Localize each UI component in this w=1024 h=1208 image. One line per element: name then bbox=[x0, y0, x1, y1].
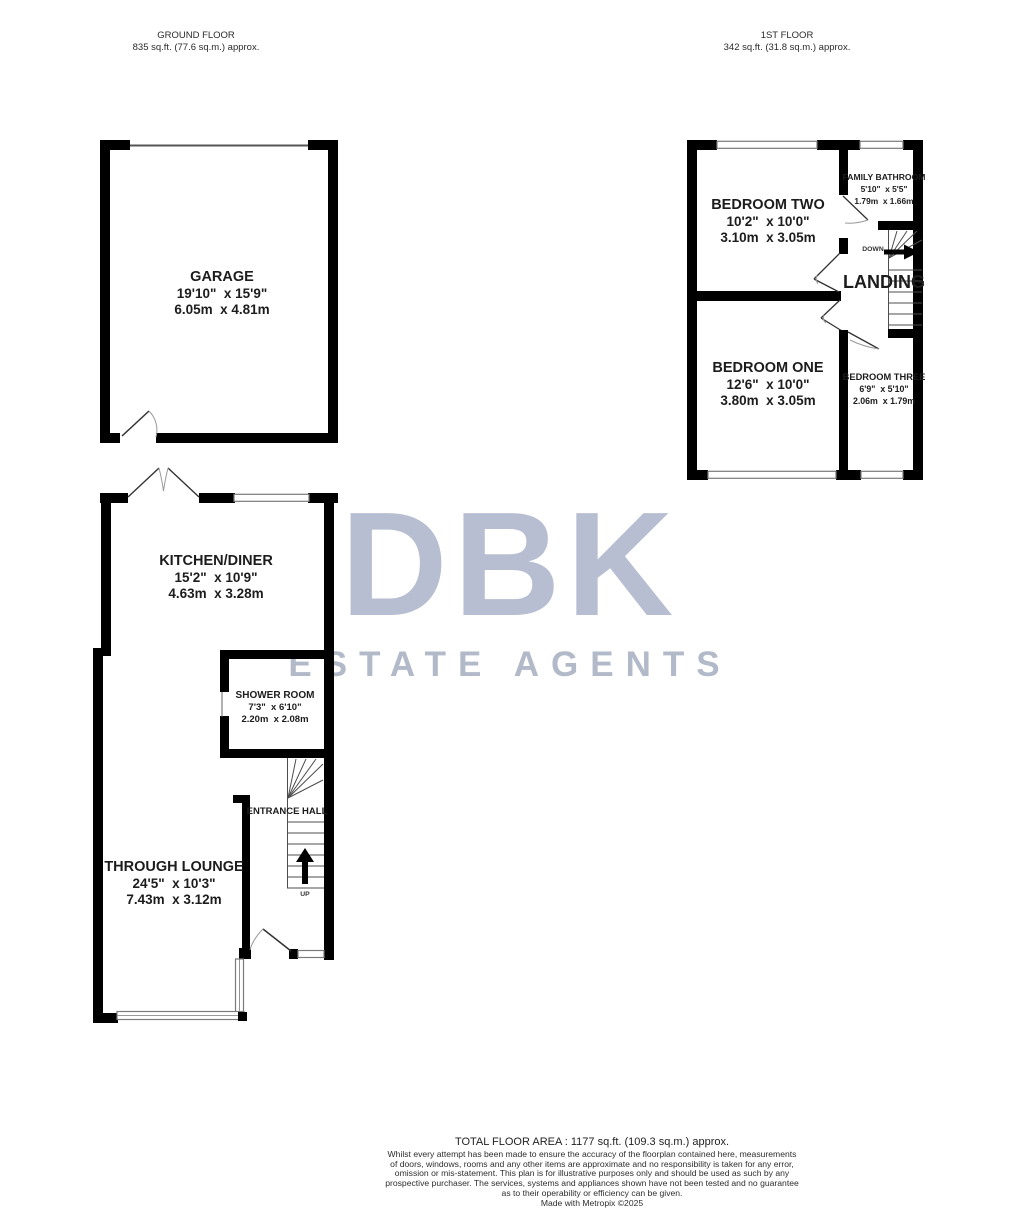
first-floor-area: 342 sq.ft. (31.8 sq.m.) approx. bbox=[637, 42, 937, 54]
bedroom-two-metric: 3.10m x 3.05m bbox=[668, 230, 868, 247]
kitchen-label: KITCHEN/DINER 15'2" x 10'9" 4.63m x 3.28… bbox=[116, 553, 316, 603]
through-lounge-metric: 7.43m x 3.12m bbox=[74, 892, 274, 909]
first-floor-title: 1ST FLOOR bbox=[637, 30, 937, 42]
bedroom-one-door bbox=[821, 300, 842, 331]
family-bathroom-metric: 1.79m x 1.66m bbox=[834, 195, 934, 207]
ground-stairs bbox=[287, 758, 324, 888]
bedroom-three-label: BEDROOM THREE 6'9" x 5'10" 2.06m x 1.79m bbox=[834, 371, 934, 407]
shower-room-label: SHOWER ROOM 7'3" x 6'10" 2.20m x 2.08m bbox=[225, 690, 325, 726]
entrance-hall-label: ENTRANCE HALL bbox=[227, 806, 347, 817]
watermark-tagline: ESTATE AGENTS bbox=[288, 648, 732, 682]
kitchen-window bbox=[234, 494, 309, 501]
front-sidelight-window bbox=[298, 951, 324, 958]
ground-floor-title: GROUND FLOOR bbox=[46, 30, 346, 42]
lounge-bay-window bbox=[117, 959, 247, 1021]
disclaimer: Whilst every attempt has been made to en… bbox=[262, 1150, 922, 1208]
garage-metric: 6.05m x 4.81m bbox=[122, 302, 322, 319]
bedroom-two-window bbox=[717, 141, 817, 148]
kitchen-name: KITCHEN/DINER bbox=[116, 553, 316, 570]
first-floor-header: 1ST FLOOR 342 sq.ft. (31.8 sq.m.) approx… bbox=[637, 30, 937, 53]
through-lounge-imperial: 24'5" x 10'3" bbox=[74, 876, 274, 893]
total-floor-area: TOTAL FLOOR AREA : 1177 sq.ft. (109.3 sq… bbox=[292, 1136, 892, 1149]
down-label: DOWN bbox=[858, 246, 888, 253]
family-bathroom-label: FAMILY BATHROOM 5'10" x 5'5" 1.79m x 1.6… bbox=[834, 171, 934, 207]
kitchen-imperial: 15'2" x 10'9" bbox=[116, 570, 316, 587]
garage-label: GARAGE 19'10" x 15'9" 6.05m x 4.81m bbox=[122, 269, 322, 319]
bedroom-three-name: BEDROOM THREE bbox=[834, 371, 934, 383]
bedroom-one-window bbox=[708, 471, 836, 478]
ground-floor-header: GROUND FLOOR 835 sq.ft. (77.6 sq.m.) app… bbox=[46, 30, 346, 53]
up-arrow-icon bbox=[296, 848, 314, 884]
shower-room-imperial: 7'3" x 6'10" bbox=[225, 702, 325, 714]
shower-room-metric: 2.20m x 2.08m bbox=[225, 714, 325, 726]
landing-label: LANDING bbox=[834, 272, 934, 292]
through-lounge-name: THROUGH LOUNGE bbox=[74, 859, 274, 876]
french-doors bbox=[128, 468, 199, 497]
family-bathroom-name: FAMILY BATHROOM bbox=[834, 171, 934, 183]
down-arrow-icon bbox=[884, 245, 919, 260]
bedroom-three-metric: 2.06m x 1.79m bbox=[834, 395, 934, 407]
bedroom-three-window bbox=[861, 471, 903, 478]
floorplan-page: DBK ESTATE AGENTS GROUND FLOOR 835 sq.ft… bbox=[0, 0, 1024, 1208]
bathroom-window bbox=[860, 141, 903, 148]
metropix-credit: Made with Metropix ©2025 bbox=[262, 1199, 922, 1208]
garage-imperial: 19'10" x 15'9" bbox=[122, 286, 322, 303]
watermark-brand: DBK bbox=[300, 505, 720, 625]
through-lounge-label: THROUGH LOUNGE 24'5" x 10'3" 7.43m x 3.1… bbox=[74, 859, 274, 909]
front-door bbox=[250, 929, 324, 959]
bedroom-two-imperial: 10'2" x 10'0" bbox=[668, 214, 868, 231]
kitchen-metric: 4.63m x 3.28m bbox=[116, 586, 316, 603]
up-label: UP bbox=[290, 891, 320, 898]
bedroom-three-imperial: 6'9" x 5'10" bbox=[834, 383, 934, 395]
garage-name: GARAGE bbox=[122, 269, 322, 286]
shower-room-name: SHOWER ROOM bbox=[225, 690, 325, 702]
family-bathroom-imperial: 5'10" x 5'5" bbox=[834, 183, 934, 195]
bedroom-three-door bbox=[848, 332, 879, 349]
garage-door-swing bbox=[122, 411, 157, 437]
ground-floor-area: 835 sq.ft. (77.6 sq.m.) approx. bbox=[46, 42, 346, 54]
